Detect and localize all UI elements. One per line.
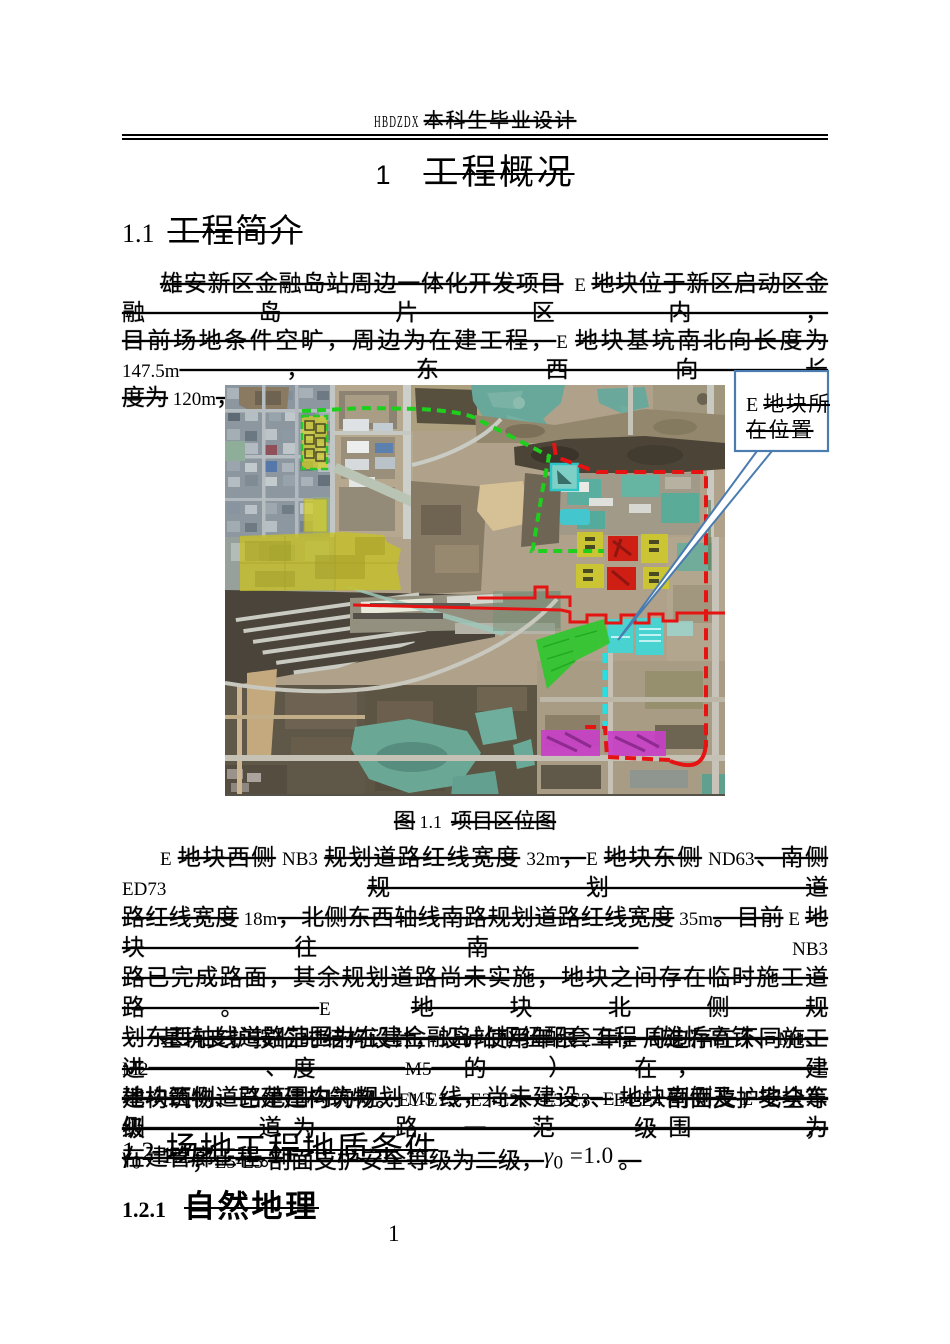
svg-text:在位置: 在位置 — [746, 419, 814, 442]
svg-text:E 地块所: E 地块所 — [746, 393, 830, 416]
